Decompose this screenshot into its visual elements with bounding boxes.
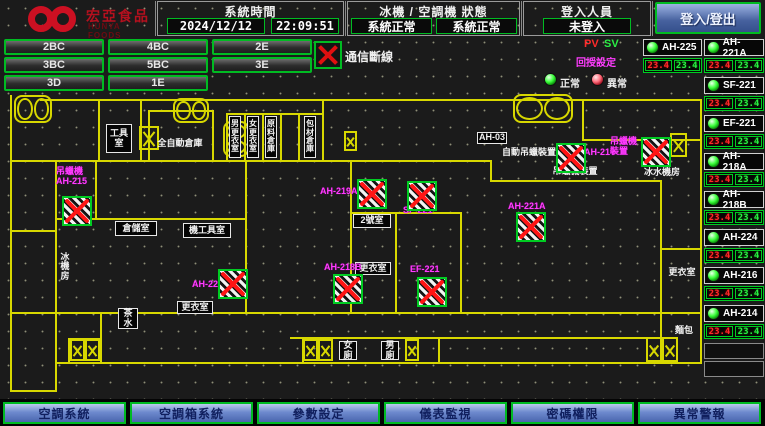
alarm-crossed-icon[interactable] [417, 277, 447, 307]
plan-device-label: AH-218B [324, 263, 362, 273]
sv-value: 23.4 [674, 60, 701, 71]
alarm-crossed-icon[interactable] [556, 143, 586, 173]
nav-button-4[interactable]: 儀表監視 [384, 402, 507, 424]
comm-loss-icon [314, 41, 342, 69]
normal-label: 正常 [560, 75, 580, 90]
floor-plan-wall [226, 113, 324, 115]
floor-button-2E[interactable]: 2E [212, 39, 312, 55]
device-led-icon [707, 307, 720, 320]
device-name: EF-221 [723, 118, 756, 129]
stairs-icon [513, 94, 573, 123]
alarm-crossed-icon[interactable] [333, 274, 363, 304]
floor-plan-wall [100, 338, 102, 364]
alarm-crossed-icon[interactable] [218, 269, 248, 299]
floor-plan-wall [490, 180, 662, 182]
shaft-icon [670, 133, 687, 157]
bottom-nav: 空調系統空調箱系統參數設定儀表監視密碼權限異常警報 [0, 399, 765, 426]
room-label: 倉儲室 [115, 221, 157, 236]
nav-button-3[interactable]: 參數設定 [257, 402, 380, 424]
device-values-AH-221A: 23.423.4 [704, 58, 764, 73]
pv-label: PV [584, 38, 599, 50]
device-AH-214[interactable]: AH-214 [704, 305, 764, 322]
device-name: AH-216 [723, 270, 757, 281]
device-values-SF-221: 23.423.4 [704, 96, 764, 111]
floor-plan-wall [98, 99, 100, 162]
floor-plan-wall [55, 362, 702, 364]
room-label: 麵包 [672, 325, 696, 336]
pv-value: 23.4 [706, 98, 733, 109]
ac-status: 系統正常 [436, 18, 517, 34]
sv-value: 23.4 [735, 326, 762, 337]
pv-value: 23.4 [706, 60, 733, 71]
device-values-AH-225: 23.423.4 [643, 58, 702, 73]
empty-device-slot [704, 361, 764, 377]
floor-button-1E[interactable]: 1E [108, 75, 208, 91]
floor-plan-wall [582, 99, 584, 141]
shaft-icon [70, 339, 85, 361]
alarm-crossed-icon[interactable] [357, 179, 387, 209]
floor-plan-wall [280, 113, 282, 162]
room-label: 工具 室 [106, 124, 132, 153]
device-values-AH-224: 23.423.4 [704, 248, 764, 263]
pv-value: 23.4 [706, 174, 733, 185]
pv-value: 23.4 [645, 60, 672, 71]
hunya-logo-icon [28, 4, 80, 34]
room-label: 冰 機 房 [56, 246, 74, 288]
room-label: 2號室 [353, 214, 391, 228]
floor-plan-wall [55, 362, 57, 392]
empty-device-slot [704, 343, 764, 359]
alarm-crossed-icon[interactable] [641, 137, 671, 167]
device-name: AH-214 [723, 308, 757, 319]
device-name: AH-225 [662, 42, 696, 53]
floor-plan-wall [660, 248, 702, 250]
device-led-icon [707, 41, 720, 54]
floor-button-5BC[interactable]: 5BC [108, 57, 208, 73]
room-label: 包材倉庫 [304, 116, 316, 158]
pv-value: 23.4 [706, 136, 733, 147]
floor-plan-wall [95, 160, 97, 220]
stairs-icon [173, 98, 209, 123]
sv-label: SV [604, 38, 619, 50]
room-label: 男更衣室 [229, 116, 241, 158]
sv-value: 23.4 [735, 288, 762, 299]
pv-value: 23.4 [706, 326, 733, 337]
pv-value: 23.4 [706, 288, 733, 299]
room-label: 原料倉庫 [265, 116, 277, 158]
device-led-icon [707, 193, 720, 206]
pv-value: 23.4 [706, 212, 733, 223]
pv-value: 23.4 [706, 250, 733, 261]
device-AH-216[interactable]: AH-216 [704, 267, 764, 284]
floor-plan-wall [395, 212, 397, 314]
comm-loss-label: 通信斷線 [345, 48, 393, 65]
plan-device-label: 吊蠟機 AH-215 [56, 167, 87, 187]
alarm-crossed-icon[interactable] [407, 181, 437, 211]
device-led-icon [707, 155, 720, 168]
shaft-icon [318, 339, 333, 361]
sv-value: 23.4 [735, 60, 762, 71]
device-name: AH-224 [723, 232, 757, 243]
nav-button-1[interactable]: 空調系統 [3, 402, 126, 424]
floor-plan-wall [10, 230, 57, 232]
floor-button-4BC[interactable]: 4BC [108, 39, 208, 55]
logo-subtitle: HUNYA FOODS [88, 22, 155, 40]
floor-plan-wall [212, 110, 214, 162]
pv-sv-caption: 回授設定 [576, 54, 616, 69]
device-AH-225[interactable]: AH-225 [643, 39, 702, 56]
shaft-icon [303, 339, 318, 361]
shaft-icon [85, 339, 100, 361]
nav-button-5[interactable]: 密碼權限 [511, 402, 634, 424]
device-values-EF-221: 23.423.4 [704, 134, 764, 149]
sv-value: 23.4 [735, 98, 762, 109]
room-label: 冰水機房 [643, 167, 681, 178]
shaft-icon [662, 337, 678, 362]
shaft-icon [405, 339, 419, 361]
sv-value: 23.4 [735, 212, 762, 223]
device-led-icon [707, 231, 720, 244]
device-AH-224[interactable]: AH-224 [704, 229, 764, 246]
device-AH-221A[interactable]: AH-221A [704, 39, 764, 56]
abnormal-label: 異常 [607, 75, 627, 90]
shaft-icon [646, 337, 662, 362]
floor-plan-wall [262, 113, 264, 162]
system-clock: 22:09:51 [271, 18, 339, 34]
device-values-AH-216: 23.423.4 [704, 286, 764, 301]
stairs-icon [14, 95, 52, 123]
floor-plan-wall [100, 312, 102, 338]
device-name: SF-221 [723, 80, 756, 91]
nav-button-2[interactable]: 空調箱系統 [130, 402, 253, 424]
plan-device-label: AH-219A [320, 187, 358, 197]
floor-plan-wall [490, 160, 492, 182]
room-label: 更衣室 [177, 301, 213, 314]
device-values-AH-218B: 23.423.4 [704, 210, 764, 225]
chiller-status: 系統正常 [351, 18, 432, 34]
logo: 宏亞食品 HUNYA FOODS [0, 0, 155, 37]
device-name: AH-221A [723, 37, 763, 59]
hmi-screen: 宏亞食品 HUNYA FOODS 系統時間 2024/12/12 22:09:5… [0, 0, 765, 426]
plan-device-label: EF-221 [410, 265, 440, 275]
floor-button-3D[interactable]: 3D [4, 75, 104, 91]
login-status: 未登入 [543, 18, 631, 34]
sv-value: 23.4 [735, 136, 762, 147]
alarm-crossed-icon[interactable] [62, 196, 92, 226]
floor-plan-wall [298, 113, 300, 162]
room-label: 自動吊蠟裝置 [501, 147, 557, 158]
device-AH-218A[interactable]: AH-218A [704, 153, 764, 170]
floor-plan-wall [290, 337, 662, 339]
device-led-icon [707, 269, 720, 282]
room-label: 更衣室 [668, 267, 696, 278]
floor-plan-wall [460, 212, 462, 314]
floor-plan-wall [438, 337, 440, 364]
device-name: AH-218A [723, 151, 763, 173]
device-name: AH-218B [723, 189, 763, 211]
sv-value: 23.4 [735, 250, 762, 261]
nav-button-6[interactable]: 異常警報 [638, 402, 761, 424]
normal-led-icon [544, 73, 557, 86]
plan-device-label: AH-221A [508, 202, 546, 212]
room-label: 女廁 [339, 341, 357, 360]
sv-value: 23.4 [735, 174, 762, 185]
device-EF-221[interactable]: EF-221 [704, 115, 764, 132]
device-AH-218B[interactable]: AH-218B [704, 191, 764, 208]
room-label: 茶 水 [118, 308, 138, 329]
room-label: 全自動倉庫 [152, 137, 208, 150]
floor-plan-wall [322, 99, 324, 162]
device-led-icon [646, 41, 659, 54]
device-led-icon [707, 117, 720, 130]
device-values-AH-214: 23.423.4 [704, 324, 764, 339]
floor-plan-wall [10, 95, 12, 392]
abnormal-led-icon [591, 73, 604, 86]
login-logout-button[interactable]: 登入/登出 [655, 2, 761, 34]
room-label: AH-03 [477, 132, 507, 144]
room-label: 機工具室 [183, 223, 231, 238]
alarm-crossed-icon[interactable] [516, 212, 546, 242]
device-SF-221[interactable]: SF-221 [704, 77, 764, 94]
device-led-icon [707, 79, 720, 92]
plan-device-label: 吊蠟機 裝置 [610, 137, 637, 157]
room-label: 男廁 [381, 341, 399, 360]
floor-plan-wall [10, 390, 57, 392]
floor-plan-wall [10, 312, 702, 314]
room-label: 女更衣室 [247, 116, 259, 158]
system-date: 2024/12/12 [167, 18, 265, 34]
floor-button-2BC[interactable]: 2BC [4, 39, 104, 55]
device-values-AH-218A: 23.423.4 [704, 172, 764, 187]
floor-button-3BC[interactable]: 3BC [4, 57, 104, 73]
floor-plan-wall [10, 160, 492, 162]
shaft-icon [344, 131, 357, 151]
floor-button-3E[interactable]: 3E [212, 57, 312, 73]
